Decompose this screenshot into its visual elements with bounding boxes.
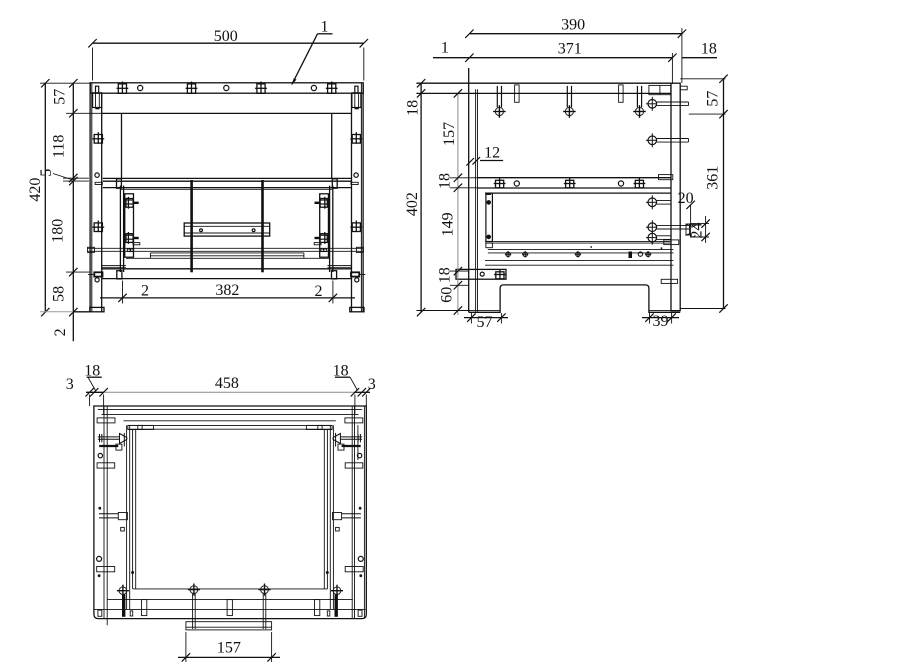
- svg-text:57: 57: [705, 91, 722, 107]
- svg-text:12: 12: [484, 144, 500, 161]
- svg-text:60: 60: [438, 287, 455, 303]
- svg-text:157: 157: [217, 640, 241, 657]
- svg-text:458: 458: [215, 375, 239, 392]
- svg-text:58: 58: [50, 286, 67, 302]
- svg-text:5: 5: [38, 169, 55, 177]
- svg-text:57: 57: [477, 314, 493, 331]
- svg-text:382: 382: [215, 282, 239, 299]
- svg-text:1: 1: [441, 39, 449, 56]
- svg-text:18: 18: [701, 41, 717, 58]
- svg-text:500: 500: [214, 28, 238, 45]
- svg-text:2: 2: [52, 328, 69, 336]
- svg-text:3: 3: [368, 376, 376, 393]
- svg-text:24: 24: [689, 223, 706, 239]
- svg-text:18: 18: [436, 173, 453, 189]
- svg-text:390: 390: [561, 17, 585, 34]
- svg-text:361: 361: [705, 166, 722, 190]
- svg-text:420: 420: [27, 178, 44, 202]
- svg-text:18: 18: [436, 267, 453, 283]
- svg-text:39: 39: [653, 313, 669, 330]
- svg-text:57: 57: [52, 89, 69, 105]
- svg-text:2: 2: [141, 283, 149, 300]
- svg-text:180: 180: [50, 219, 67, 243]
- svg-text:157: 157: [441, 122, 458, 146]
- svg-text:18: 18: [405, 100, 422, 116]
- svg-text:402: 402: [404, 192, 421, 216]
- svg-text:149: 149: [440, 212, 457, 236]
- svg-text:3: 3: [66, 376, 74, 393]
- svg-text:1: 1: [321, 19, 329, 36]
- svg-text:2: 2: [315, 283, 323, 300]
- svg-text:371: 371: [558, 41, 582, 58]
- svg-text:118: 118: [50, 135, 67, 158]
